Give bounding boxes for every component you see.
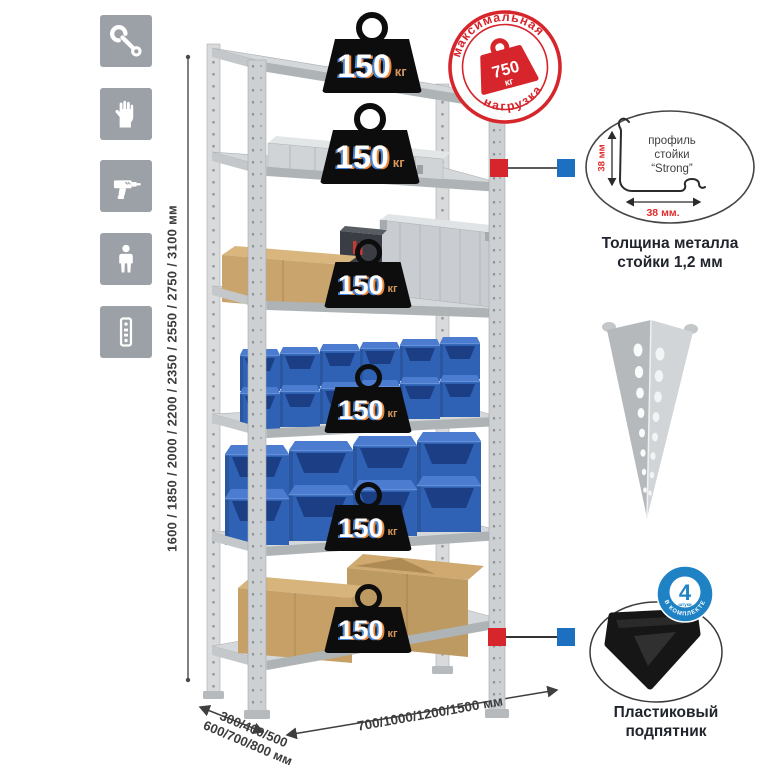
profile-caption: Толщина металла стойки 1,2 мм — [583, 234, 757, 273]
load-value: 150 — [335, 141, 388, 173]
callout-marker-blue-bottom — [557, 628, 575, 646]
load-unit: кг — [387, 526, 397, 538]
post-profile-feature: 38 мм 38 мм. профиль стойки “Strong” — [583, 106, 757, 228]
profile-height-dim: 38 мм — [597, 144, 608, 171]
profile-width-dim: 38 мм. — [646, 207, 679, 219]
shelf-load-badge-2: 150кг — [320, 103, 420, 184]
profile-label-3: “Strong” — [651, 163, 693, 175]
plastic-foot-feature: 4 штуки в комплекте — [586, 560, 736, 710]
callout-marker-red-bottom — [488, 628, 506, 646]
weight-handle-icon — [355, 364, 382, 391]
load-value: 150 — [337, 50, 390, 82]
product-infographic: 1600 / 1850 / 2000 / 2200 / 2350 / 2550 … — [0, 0, 765, 765]
callout-marker-blue-top — [557, 159, 575, 177]
shelf-load-badge-1: 150кг — [322, 12, 422, 93]
quantity-badge: 4 штуки в комплекте — [657, 566, 713, 622]
rack-foot — [203, 691, 224, 699]
callout-line-bottom — [506, 636, 557, 638]
badge-small-text: штуки — [678, 602, 692, 607]
callout-line-top — [508, 167, 557, 169]
profile-label-2: стойки — [654, 149, 689, 161]
callout-marker-red-top — [490, 159, 508, 177]
load-unit: кг — [395, 64, 407, 79]
load-unit: кг — [387, 628, 397, 640]
load-value: 150 — [338, 617, 383, 644]
angle-post-image — [597, 300, 743, 530]
shelf-load-badge-6: 150кг — [324, 584, 412, 653]
shelf-load-badge-5: 150кг — [324, 482, 412, 551]
load-unit: кг — [387, 283, 397, 295]
shelf-load-badge-3: 150кг — [324, 239, 412, 308]
rack-foot — [432, 666, 453, 674]
profile-label-1: профиль — [648, 135, 696, 147]
weight-handle-icon — [355, 584, 382, 611]
weight-handle-icon — [355, 239, 382, 266]
max-load-stamp: максимальная нагрузка 750 кг — [443, 5, 567, 129]
load-value: 150 — [338, 272, 383, 299]
load-unit: кг — [387, 408, 397, 420]
foot-caption: Пластиковый подпятник — [586, 703, 746, 742]
weight-handle-icon — [355, 482, 382, 509]
load-value: 150 — [338, 515, 383, 542]
shelf-load-badge-4: 150кг — [324, 364, 412, 433]
height-dimension-label: 1600 / 1850 / 2000 / 2200 / 2350 / 2550 … — [165, 79, 180, 679]
load-unit: кг — [393, 155, 405, 170]
load-value: 150 — [338, 397, 383, 424]
